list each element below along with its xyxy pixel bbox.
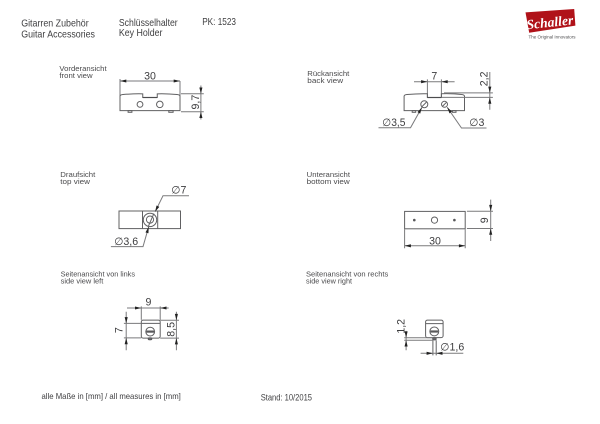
svg-text:7: 7 bbox=[114, 327, 126, 333]
svg-text:The Original Innovators: The Original Innovators bbox=[529, 35, 577, 40]
svg-text:∅1,6: ∅1,6 bbox=[440, 342, 464, 354]
svg-text:30: 30 bbox=[429, 235, 441, 247]
svg-text:∅7: ∅7 bbox=[171, 185, 186, 197]
svg-text:Stand: 10/2015: Stand: 10/2015 bbox=[261, 393, 312, 403]
svg-text:bottom view: bottom view bbox=[307, 177, 351, 186]
svg-text:side view left: side view left bbox=[61, 277, 104, 286]
svg-text:PK: 1523: PK: 1523 bbox=[202, 17, 236, 28]
svg-text:9,7: 9,7 bbox=[190, 95, 202, 110]
svg-text:2,2: 2,2 bbox=[478, 71, 490, 86]
svg-text:Guitar Accessories: Guitar Accessories bbox=[21, 29, 95, 40]
svg-text:top view: top view bbox=[60, 177, 90, 186]
svg-text:∅3: ∅3 bbox=[469, 117, 484, 129]
svg-text:9: 9 bbox=[146, 297, 152, 309]
svg-text:9: 9 bbox=[479, 217, 491, 223]
svg-text:back view: back view bbox=[307, 76, 344, 85]
svg-text:7: 7 bbox=[431, 71, 437, 83]
svg-text:side view right: side view right bbox=[306, 277, 352, 286]
svg-text:front view: front view bbox=[59, 71, 93, 80]
svg-text:Gitarren Zubehör: Gitarren Zubehör bbox=[21, 19, 89, 30]
svg-text:1,2: 1,2 bbox=[395, 319, 407, 334]
svg-text:alle Maße in [mm] / all measur: alle Maße in [mm] / all measures in [mm] bbox=[42, 391, 181, 401]
svg-text:8,5: 8,5 bbox=[165, 322, 177, 337]
svg-text:Key Holder: Key Holder bbox=[119, 28, 163, 39]
